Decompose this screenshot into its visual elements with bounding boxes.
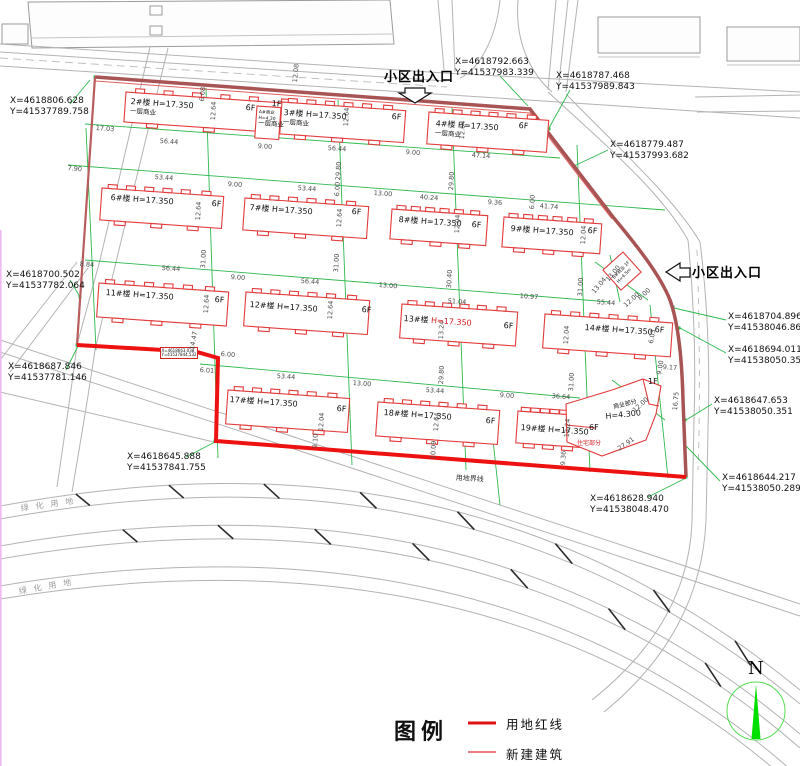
dim-label: 13.00: [378, 281, 397, 290]
dim-label: 12.64: [202, 294, 211, 313]
building-number: 4#楼: [435, 119, 455, 129]
building-note: 一层商业: [258, 121, 284, 128]
coordinate-label: X=4618628.940Y=41538048.470: [590, 494, 669, 516]
dim-label: 8.84: [79, 260, 94, 269]
dim-label: 13.00: [352, 379, 371, 388]
dim-label: 9.00: [499, 391, 514, 400]
dim-label: 29.80: [437, 365, 446, 384]
dim-label: 36.64: [551, 392, 570, 401]
dim-label: 9.36: [559, 451, 568, 466]
coordinate-x: X=4618628.940: [590, 494, 669, 505]
coordinate-x: X=4618700.502: [6, 270, 85, 281]
building-16-residential-label: 住宅部分: [577, 438, 601, 447]
dim-label: 9.00: [227, 180, 242, 189]
building-label: A#商业H=4.30一层商业: [258, 110, 285, 128]
new-buildings-layer: [96, 88, 673, 451]
building-floors: 6F: [654, 325, 664, 335]
dim-label: 9.00: [230, 273, 245, 282]
coordinate-label: X=4618779.487Y=41537993.682: [610, 140, 689, 162]
north-label: N: [748, 658, 764, 679]
building-floors: 6F: [391, 112, 401, 122]
building-number: 8#楼: [398, 215, 418, 225]
building-outline: [242, 194, 368, 243]
building-floors: 6F: [587, 226, 597, 236]
building-number: 6#楼: [110, 193, 130, 203]
dim-label: 56.44: [300, 277, 319, 286]
coordinate-y: Y=41537983.339: [455, 68, 534, 79]
site-plan-canvas: 小区出入口 小区出入口 用地界线 绿化用地 绿化用地 N 图例 用地红线 新建建…: [0, 0, 800, 766]
dim-label: 10.09: [429, 440, 438, 459]
coordinate-x: X=4618806.628: [10, 96, 89, 107]
dim-label: 51.04: [447, 297, 466, 306]
dim-label: 29.80: [447, 171, 456, 190]
coordinate-y: Y=41537993.682: [610, 151, 689, 162]
building-number: 14#楼: [584, 323, 609, 334]
building-number: 13#楼: [403, 314, 428, 325]
dim-label: 6.00: [528, 195, 537, 210]
dim-label: 41.74: [539, 202, 558, 211]
dim-label: 31.00: [332, 253, 341, 272]
coordinate-y: Y=41538050.351: [728, 356, 800, 367]
building-floors: 1F: [271, 99, 281, 109]
coordinate-x: X=4618704.896: [728, 312, 800, 323]
coordinate-label: X=4618700.502Y=41537782.064: [6, 270, 85, 292]
dim-label: 9.00: [405, 148, 420, 157]
coordinate-label: X=4618644.217Y=41538050.289: [722, 473, 800, 495]
dim-label: 6.01: [199, 366, 214, 375]
coordinate-x: X=4618645.888: [127, 452, 206, 463]
coordinate-y: Y=41537781.146: [8, 373, 87, 384]
building-floors: 6F: [518, 121, 528, 131]
coordinate-x: X=4618647.653: [714, 396, 793, 407]
building-floors: 6F: [336, 404, 346, 414]
dim-label: 12.64: [194, 201, 203, 220]
coordinate-x: X=4618687.846: [8, 362, 87, 373]
legend-item-new-building: 新建建筑: [506, 744, 564, 763]
dim-label: 31.00: [576, 277, 585, 296]
coordinate-label: X=4618687.846Y=41537781.146: [8, 362, 87, 384]
dim-label: 12.04: [562, 325, 571, 344]
dim-label: 55.44: [596, 298, 615, 307]
dim-label: 9.00: [257, 142, 272, 151]
dim-label: 53.44: [425, 386, 444, 395]
coordinate-x: X=4618644.217: [722, 473, 800, 484]
dim-label: 6.00: [220, 350, 235, 359]
entrance-right-label: 小区出入口: [692, 262, 762, 281]
dim-label: 9.36: [487, 198, 502, 207]
coordinate-label: X=4618704.896Y=41538046.868: [728, 312, 800, 334]
coordinate-x: X=4618694.011: [728, 345, 800, 356]
building-number: 3#楼: [283, 108, 303, 118]
dim-label: 31.00: [199, 249, 208, 268]
dim-label: 56.44: [161, 264, 180, 273]
coordinate-y: Y=41538050.289: [722, 484, 800, 495]
building-number: 11#楼: [105, 288, 130, 299]
building-number: 9#楼: [510, 224, 530, 234]
entrance-right-arrow-icon: [666, 263, 690, 281]
dim-label: 56.44: [159, 137, 178, 146]
building-number: 7#楼: [249, 203, 269, 213]
dim-label: 56.44: [327, 144, 346, 153]
dim-label: 13.00: [373, 189, 392, 198]
dim-label: 40.24: [419, 193, 438, 202]
coordinate-y: Y=41538050.351: [714, 407, 793, 418]
boundary-line-label: 用地界线: [455, 473, 483, 484]
dim-label: 9.10: [311, 434, 320, 449]
coordinate-y: Y=41537989.843: [556, 82, 635, 93]
building-floors: 6F: [485, 416, 495, 426]
building-floors: 6F: [361, 305, 371, 315]
building-floors: 6F: [471, 220, 481, 230]
dim-label: 10.97: [519, 292, 538, 301]
dim-label: 31.00: [567, 372, 576, 391]
coordinate-x: X=4618787.468: [556, 71, 635, 82]
building-16-floors: 6F: [589, 423, 599, 432]
building-number: 12#楼: [249, 300, 274, 311]
coordinate-label: X=4618645.888Y=41537841.755: [127, 452, 206, 474]
dim-label: 16.75: [671, 391, 681, 410]
dim-label: 53.44: [297, 184, 316, 193]
coordinate-label: X=4618787.468Y=41537989.843: [556, 71, 635, 93]
dim-label: 12.64: [335, 208, 344, 227]
north-arrow-icon: [727, 682, 785, 740]
coordinate-y: Y=41538048.470: [590, 505, 669, 516]
coordinate-label: X=4618647.653Y=41538050.351: [714, 396, 793, 418]
coordinate-x: X=4618792.663: [455, 57, 534, 68]
coordinate-label: X=4618792.663Y=41537983.339: [455, 57, 534, 79]
dim-label: 53.44: [154, 173, 173, 182]
coordinate-x: X=4618779.487: [610, 140, 689, 151]
building-outline: [99, 184, 223, 232]
building-outline: [225, 386, 350, 436]
building-16-floors-commercial: 1F: [648, 377, 658, 386]
building-floors: 6F: [211, 199, 221, 209]
viewport-edge-line: [0, 230, 2, 766]
dim-label: 7.90: [67, 164, 82, 173]
building-floors: 6F: [503, 321, 513, 331]
coordinate-y: Y=41538046.868: [728, 323, 800, 334]
dim-label: 29.80: [334, 161, 343, 180]
building-floors: 6F: [245, 103, 255, 113]
building-floors: 6F: [351, 207, 361, 217]
coordinate-label: X=4618806.628Y=41537789.758: [10, 96, 89, 118]
building-number: 17#楼: [229, 395, 254, 406]
step-coordinate-y: Y=41537844.532: [162, 353, 197, 358]
building-number: 18#楼: [383, 408, 408, 419]
dim-label: 6.08: [198, 87, 207, 102]
coordinate-y: Y=41537782.064: [6, 281, 85, 292]
coordinate-label: X=4618694.011Y=41538050.351: [728, 345, 800, 367]
dim-label: 17.03: [95, 124, 114, 133]
dim-label: 6.00: [333, 182, 342, 197]
building-floors: 6F: [214, 295, 224, 305]
building-number: 19#楼: [520, 423, 545, 434]
dim-label: 12.08: [291, 63, 301, 82]
dim-label: 47.14: [471, 151, 490, 160]
building-number: 2#楼: [130, 97, 150, 107]
dim-label: 53.44: [276, 372, 295, 381]
coordinate-y: Y=41537841.755: [127, 463, 206, 474]
coordinate-y: Y=41537789.758: [10, 107, 89, 118]
legend-item-red-line: 用地红线: [506, 714, 564, 733]
dim-label: 12.64: [326, 300, 335, 319]
entrance-top-label: 小区出入口: [384, 66, 454, 85]
legend-title: 图例: [394, 714, 448, 746]
dim-label: 30.40: [445, 269, 454, 288]
dim-label: 12.04: [317, 412, 326, 431]
dim-label: 12.64: [209, 101, 218, 120]
